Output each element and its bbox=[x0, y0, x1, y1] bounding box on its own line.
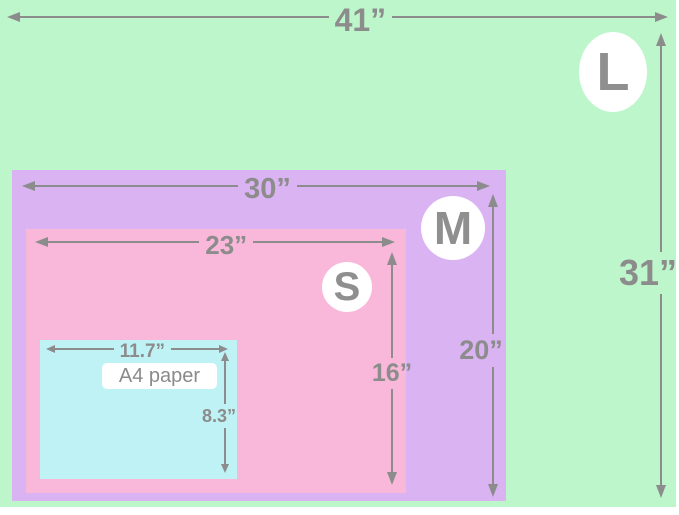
dim-line-segment bbox=[391, 265, 393, 358]
dim-l-width-label: 41” bbox=[329, 4, 393, 36]
arrowhead-left-icon bbox=[7, 12, 20, 22]
dim-a4-height: 8.3” bbox=[215, 352, 235, 473]
dim-s-width: 23” bbox=[35, 232, 395, 252]
arrowhead-down-icon bbox=[488, 484, 498, 497]
arrowhead-up-icon bbox=[656, 33, 666, 46]
dim-m-width-label: 30” bbox=[238, 175, 297, 204]
dim-line-segment bbox=[660, 46, 662, 252]
arrowhead-down-icon bbox=[221, 464, 229, 473]
dim-m-height: 20” bbox=[483, 194, 503, 497]
dim-a4-height-label: 8.3” bbox=[202, 404, 236, 428]
dim-line-segment bbox=[35, 185, 238, 187]
arrowhead-left-icon bbox=[22, 181, 35, 191]
a4-paper-label-text: A4 paper bbox=[119, 365, 200, 388]
arrowhead-right-icon bbox=[655, 12, 668, 22]
badge-l-letter: L bbox=[597, 45, 630, 99]
arrowhead-up-icon bbox=[387, 252, 397, 265]
dim-l-height-label: 31” bbox=[619, 252, 677, 294]
arrowhead-up-icon bbox=[221, 352, 229, 361]
dim-line-segment bbox=[171, 348, 219, 350]
dim-line-segment bbox=[55, 348, 114, 350]
dim-line-segment bbox=[48, 241, 199, 243]
badge-m-letter: M bbox=[434, 205, 472, 251]
badge-m: M bbox=[421, 196, 485, 260]
arrowhead-down-icon bbox=[656, 485, 666, 498]
dim-m-height-label: 20” bbox=[459, 334, 503, 367]
dim-line-segment bbox=[224, 428, 226, 464]
dim-s-height: 16” bbox=[382, 252, 402, 485]
dim-line-segment bbox=[20, 16, 329, 18]
dim-a4-width-label: 11.7” bbox=[114, 342, 171, 361]
dim-line-segment bbox=[660, 294, 662, 485]
badge-s: S bbox=[322, 262, 372, 312]
dim-line-segment bbox=[391, 389, 393, 472]
dim-a4-width: 11.7” bbox=[46, 339, 228, 359]
arrowhead-right-icon bbox=[382, 237, 395, 247]
arrowhead-up-icon bbox=[488, 194, 498, 207]
dim-line-segment bbox=[224, 361, 226, 404]
a4-paper-label: A4 paper bbox=[102, 363, 217, 389]
arrowhead-right-icon bbox=[477, 181, 490, 191]
dim-line-segment bbox=[492, 367, 494, 484]
dim-m-width: 30” bbox=[22, 176, 490, 196]
dim-line-segment bbox=[492, 207, 494, 334]
dim-line-segment bbox=[392, 16, 655, 18]
dim-s-height-label: 16” bbox=[372, 358, 412, 389]
size-comparison-diagram: 41” 30” 23” 11.7” 31” 20” bbox=[0, 0, 679, 515]
dim-line-segment bbox=[297, 185, 477, 187]
arrowhead-left-icon bbox=[46, 345, 55, 353]
dim-line-segment bbox=[253, 241, 382, 243]
badge-s-letter: S bbox=[334, 267, 361, 307]
arrowhead-down-icon bbox=[387, 472, 397, 485]
badge-l: L bbox=[579, 32, 647, 112]
dim-l-width: 41” bbox=[7, 7, 668, 27]
dim-s-width-label: 23” bbox=[199, 232, 253, 258]
dim-l-height: 31” bbox=[651, 33, 671, 498]
arrowhead-left-icon bbox=[35, 237, 48, 247]
